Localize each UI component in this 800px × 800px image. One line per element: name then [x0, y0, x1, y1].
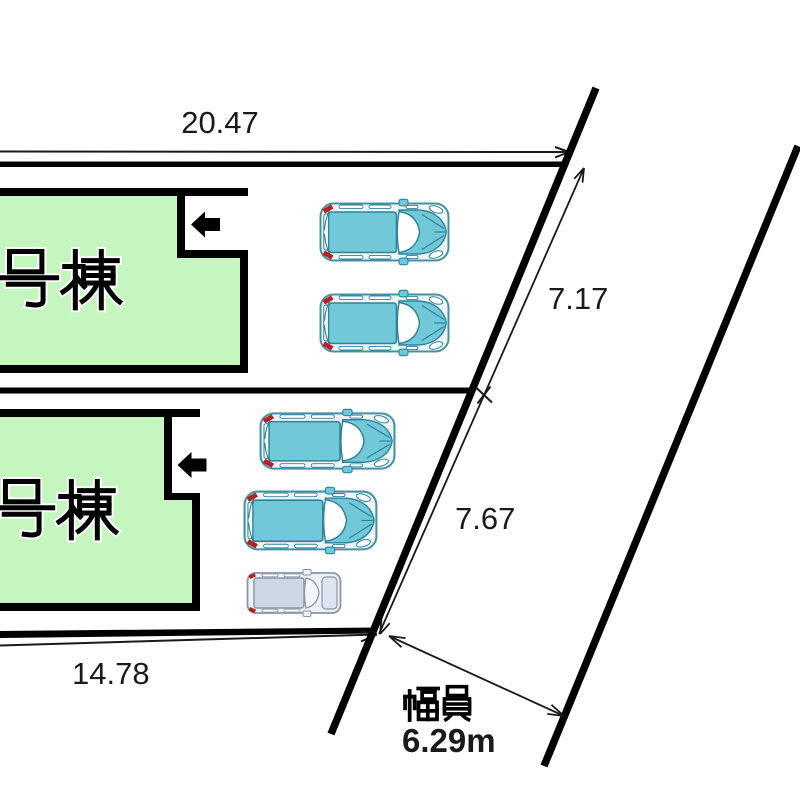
svg-text:7.67: 7.67: [455, 501, 515, 536]
svg-text:14.78: 14.78: [72, 656, 150, 691]
svg-text:7.17: 7.17: [548, 281, 608, 316]
svg-text:20.47: 20.47: [181, 105, 259, 140]
svg-text:6.29m: 6.29m: [402, 722, 496, 759]
